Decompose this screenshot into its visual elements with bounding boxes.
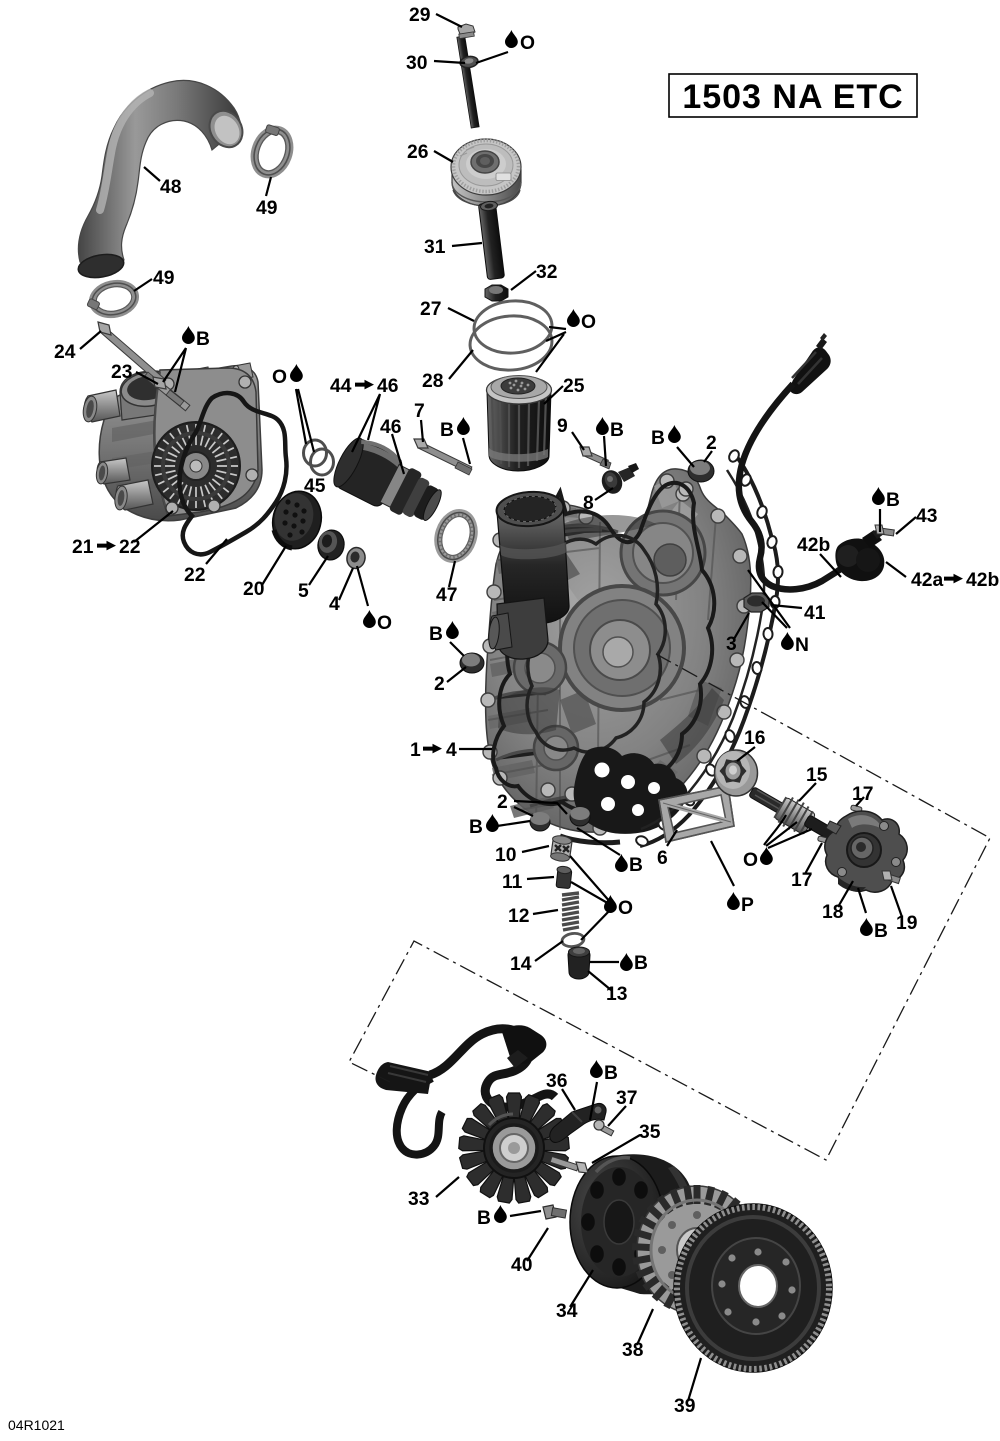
- svg-text:22: 22: [184, 565, 205, 586]
- svg-text:O: O: [520, 33, 535, 54]
- svg-text:4: 4: [329, 594, 340, 615]
- svg-text:B: B: [604, 1063, 618, 1084]
- svg-text:7: 7: [414, 401, 425, 422]
- svg-text:48: 48: [160, 177, 182, 198]
- svg-text:B: B: [629, 855, 643, 876]
- svg-text:12: 12: [508, 906, 529, 927]
- svg-text:35: 35: [639, 1122, 661, 1143]
- svg-text:17: 17: [791, 870, 812, 891]
- svg-text:P: P: [741, 895, 754, 916]
- svg-text:17: 17: [852, 784, 873, 805]
- svg-text:41: 41: [804, 603, 826, 624]
- svg-text:11: 11: [502, 872, 523, 893]
- svg-text:25: 25: [563, 376, 585, 397]
- svg-text:2: 2: [706, 433, 717, 454]
- svg-text:42b: 42b: [797, 535, 830, 556]
- svg-text:42a: 42a: [911, 570, 943, 591]
- svg-text:1: 1: [410, 740, 421, 761]
- svg-text:2: 2: [497, 792, 508, 813]
- svg-text:42b: 42b: [966, 570, 999, 591]
- svg-text:1503 NA ETC: 1503 NA ETC: [682, 78, 903, 116]
- svg-text:B: B: [429, 624, 443, 645]
- svg-text:4: 4: [446, 740, 457, 761]
- svg-text:49: 49: [256, 198, 277, 219]
- svg-text:O: O: [618, 898, 633, 919]
- svg-text:32: 32: [536, 262, 557, 283]
- svg-text:31: 31: [424, 237, 446, 258]
- svg-text:B: B: [634, 953, 648, 974]
- svg-text:18: 18: [822, 902, 844, 923]
- svg-text:B: B: [874, 921, 888, 942]
- svg-text:B: B: [440, 420, 454, 441]
- svg-text:38: 38: [622, 1340, 644, 1361]
- svg-text:34: 34: [556, 1301, 578, 1322]
- svg-text:14: 14: [510, 954, 532, 975]
- svg-text:39: 39: [674, 1396, 695, 1417]
- svg-text:33: 33: [408, 1189, 430, 1210]
- svg-text:15: 15: [806, 765, 828, 786]
- svg-text:3: 3: [726, 634, 737, 655]
- svg-text:16: 16: [744, 728, 766, 749]
- svg-text:30: 30: [406, 53, 427, 74]
- svg-text:O: O: [272, 367, 287, 388]
- svg-text:10: 10: [495, 845, 516, 866]
- svg-text:27: 27: [420, 299, 441, 320]
- svg-text:B: B: [196, 329, 210, 350]
- svg-text:B: B: [886, 490, 900, 511]
- svg-text:B: B: [469, 817, 483, 838]
- svg-text:04R1021: 04R1021: [8, 1417, 65, 1433]
- svg-text:N: N: [795, 635, 809, 656]
- svg-text:28: 28: [422, 371, 444, 392]
- svg-text:B: B: [610, 420, 624, 441]
- svg-text:47: 47: [436, 585, 457, 606]
- svg-text:O: O: [377, 613, 392, 634]
- svg-text:2: 2: [434, 674, 445, 695]
- svg-text:20: 20: [243, 579, 264, 600]
- svg-text:19: 19: [896, 913, 917, 934]
- svg-text:O: O: [743, 850, 758, 871]
- svg-text:5: 5: [298, 581, 309, 602]
- svg-text:8: 8: [583, 493, 594, 514]
- svg-text:23: 23: [111, 362, 133, 383]
- svg-text:24: 24: [54, 342, 76, 363]
- svg-text:46: 46: [380, 417, 402, 438]
- svg-text:9: 9: [557, 416, 568, 437]
- svg-text:O: O: [581, 312, 596, 333]
- svg-text:49: 49: [153, 268, 174, 289]
- svg-text:37: 37: [616, 1088, 637, 1109]
- svg-text:43: 43: [916, 506, 938, 527]
- svg-text:22: 22: [119, 537, 140, 558]
- svg-text:6: 6: [657, 848, 668, 869]
- svg-text:13: 13: [606, 984, 628, 1005]
- svg-text:B: B: [477, 1208, 491, 1229]
- svg-text:40: 40: [511, 1255, 532, 1276]
- svg-text:21: 21: [72, 537, 94, 558]
- svg-text:45: 45: [304, 476, 326, 497]
- svg-text:36: 36: [546, 1071, 568, 1092]
- svg-text:44: 44: [330, 376, 352, 397]
- svg-text:B: B: [651, 428, 665, 449]
- svg-text:46: 46: [377, 376, 399, 397]
- svg-text:29: 29: [409, 5, 430, 26]
- svg-text:26: 26: [407, 142, 429, 163]
